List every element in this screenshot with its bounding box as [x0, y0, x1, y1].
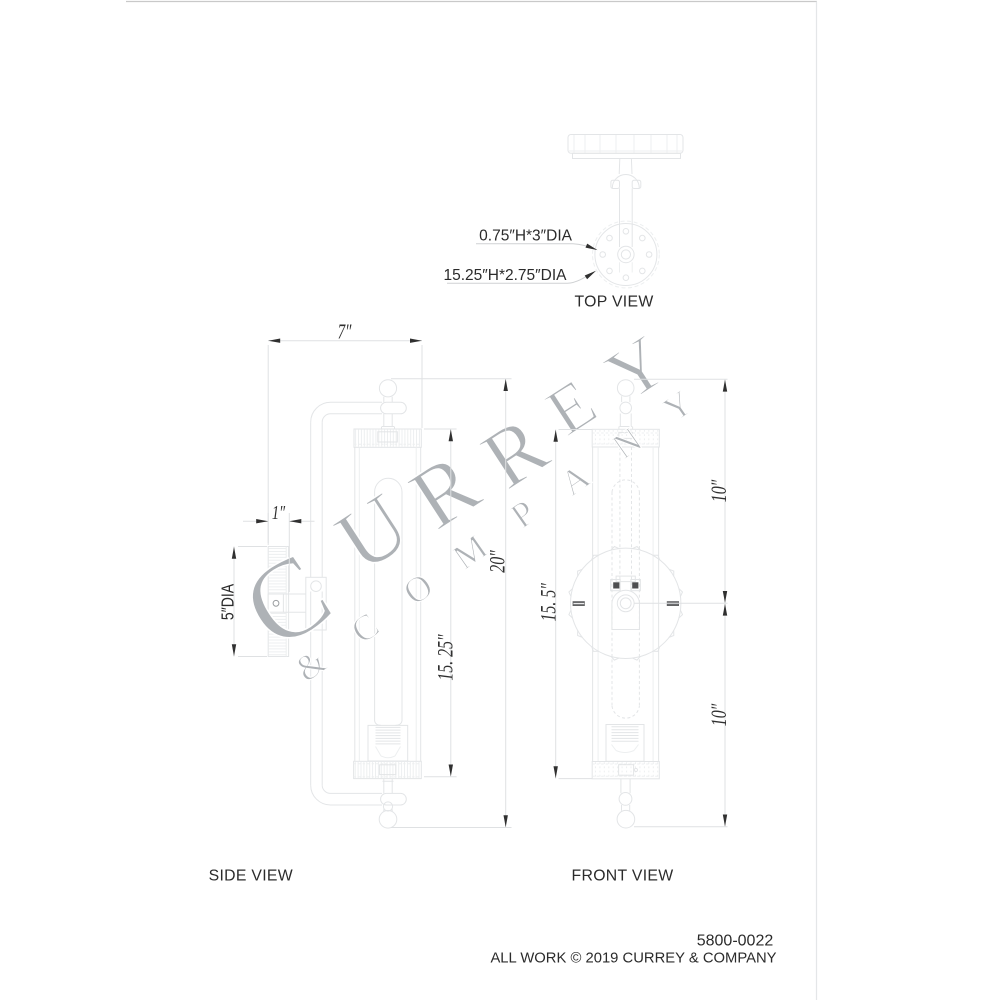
svg-text:15. 5″: 15. 5″ — [537, 582, 561, 621]
svg-text:E: E — [533, 364, 609, 450]
svg-text:SIDE VIEW: SIDE VIEW — [209, 868, 293, 885]
svg-text:A: A — [553, 456, 597, 504]
svg-text:R: R — [466, 399, 564, 508]
svg-text:ALL WORK © 2019 CURREY & COMPA: ALL WORK © 2019 CURREY & COMPANY — [490, 951, 776, 967]
svg-text:7″: 7″ — [338, 320, 352, 343]
svg-text:TOP VIEW: TOP VIEW — [574, 294, 653, 311]
svg-text:N: N — [605, 419, 649, 467]
svg-text:5800-0022: 5800-0022 — [697, 933, 774, 950]
svg-text:0.75″H*3″DIA: 0.75″H*3″DIA — [479, 228, 572, 245]
svg-text:10″: 10″ — [708, 703, 732, 726]
svg-text:O: O — [396, 565, 440, 613]
svg-text:C: C — [222, 529, 352, 674]
svg-text:1″: 1″ — [272, 501, 286, 524]
svg-text:20″: 20″ — [486, 549, 510, 572]
svg-text:15. 25″: 15. 25″ — [434, 634, 458, 681]
svg-text:15.25″H*2.75″DIA: 15.25″H*2.75″DIA — [444, 267, 568, 284]
svg-text:10″: 10″ — [708, 479, 732, 502]
svg-text:P: P — [503, 492, 542, 536]
svg-text:C: C — [344, 605, 387, 652]
svg-text:FRONT VIEW: FRONT VIEW — [572, 868, 674, 885]
svg-text:5″DIA: 5″DIA — [218, 584, 238, 620]
